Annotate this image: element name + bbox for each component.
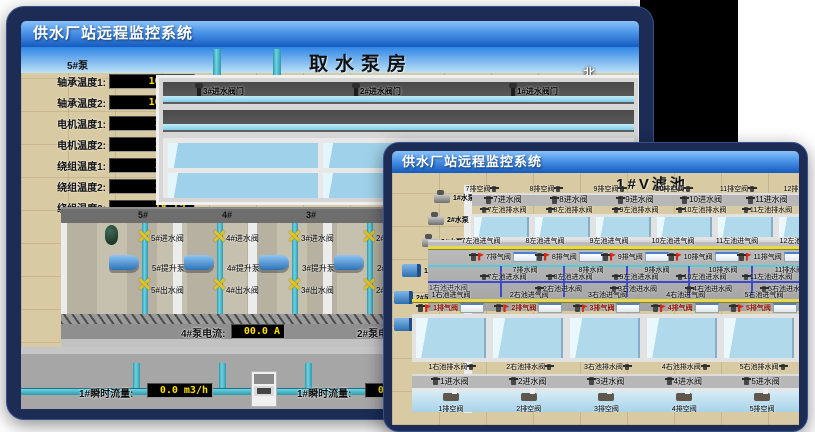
vent-pump[interactable] — [645, 392, 723, 402]
vent-valve[interactable]: 4排空阀 — [645, 404, 723, 413]
tank-icon — [579, 252, 603, 262]
valve-icon — [492, 186, 496, 192]
intake-valve[interactable]: 2#进水阀门 — [320, 84, 477, 98]
drain-header-pipe — [428, 281, 799, 283]
exhaust-valve[interactable]: 9排气阀 — [603, 250, 669, 263]
top-inlet-valve-row: 7进水阀8进水阀9进水阀10进水阀11进水阀 — [471, 194, 799, 205]
valve-label: 1进水阀 — [440, 376, 468, 387]
valve-handwheel-icon[interactable] — [362, 277, 376, 291]
inlet-valve-label: 3#进水阀 — [301, 233, 334, 244]
exhaust-valve[interactable]: 3排气阀 — [568, 302, 646, 314]
outlet-valve-label: 3#出水阀 — [301, 285, 334, 296]
air-valve[interactable]: 10左池进气阀 — [641, 236, 705, 245]
valve-label: 11排空阀 — [720, 184, 748, 194]
air-valve[interactable]: 5右池进气阀 — [725, 291, 799, 299]
valve-label: 10排空阀 — [656, 184, 685, 194]
valve-label: 8左池进气阀 — [526, 236, 565, 246]
exhaust-flag-icon — [660, 304, 666, 312]
valve-label: 2右池排水阀 — [506, 362, 545, 372]
valve-label: 10左池进气阀 — [652, 236, 695, 246]
telemetry-label: 电机温度1: — [27, 116, 109, 131]
top-vent-valve-row: 7排空阀8排空阀9排空阀10排空阀11排空阀12排空阀 — [449, 184, 799, 193]
back-window-titlebar: 供水厂站远程监控系统 — [21, 21, 639, 47]
valve-label: 1右池进气阀 — [432, 290, 471, 300]
pump-bay[interactable]: 3#进水阀 3#提升泵 3#出水阀 — [257, 223, 332, 314]
intake-valve[interactable]: 3#进水阀门 — [163, 84, 320, 98]
valve-label: 5排气阀 — [746, 303, 771, 313]
inlet-valve[interactable]: 8进水阀 — [537, 194, 603, 205]
valve-handwheel-icon[interactable] — [137, 229, 151, 243]
valve-label: 10进水阀 — [689, 194, 722, 205]
pump-bay[interactable]: 4#进水阀 4#提升泵 4#出水阀 — [182, 223, 257, 314]
valve-icon — [354, 87, 358, 96]
exhaust-flag-icon — [738, 304, 744, 312]
valve-label: 12排空阀 — [784, 184, 799, 194]
air-valve[interactable]: 2右池进气阀 — [490, 291, 568, 299]
valve-icon — [418, 304, 423, 312]
drain-valve[interactable]: 5右池排水阀 — [723, 362, 799, 371]
valve-icon — [547, 364, 551, 370]
filter-pool — [596, 217, 651, 237]
water-valve[interactable]: 10左池进水阀 — [669, 273, 735, 281]
inlet-valve[interactable]: 10进水阀 — [669, 194, 735, 205]
intake-pool-cell — [168, 173, 318, 198]
filter-pool — [779, 217, 799, 237]
inlet-valve-label: 5#进水阀 — [151, 233, 184, 244]
pump-current-display: 00.0 A — [231, 324, 285, 339]
valve-label: 3排气阀 — [590, 303, 615, 313]
drain-valve[interactable]: 11左池排水阀 — [735, 206, 799, 214]
valve-label: 2进水阀 — [518, 376, 546, 387]
lower-filter-pools — [412, 314, 799, 362]
valve-icon — [433, 377, 438, 385]
filter-pool — [657, 217, 712, 237]
tank-icon — [715, 252, 739, 262]
valve-label: 3进水阀 — [596, 376, 624, 387]
background-black-panel — [640, 0, 738, 143]
valve-icon — [703, 364, 707, 370]
water-pump-label: 2#水泵 — [447, 215, 469, 225]
valve-icon — [625, 364, 629, 370]
lift-pump-label: 3#提升泵 — [302, 263, 335, 274]
tank-icon — [538, 303, 562, 313]
inlet-valve[interactable]: 4进水阀 — [645, 375, 723, 387]
valve-icon — [197, 87, 201, 96]
inlet-valve[interactable]: 1进水阀 — [412, 375, 490, 387]
tank-icon — [513, 252, 537, 262]
flow-meter-icon[interactable] — [251, 371, 277, 407]
vent-valve[interactable]: 7排空阀 — [449, 184, 513, 193]
vent-pump[interactable] — [723, 392, 799, 402]
water-pump[interactable]: 2#水泵 — [428, 209, 475, 231]
valve-label: 11左池进水阀 — [750, 272, 792, 282]
filter-pool-scene: 1#V滤池 1#水泵 2#水泵 3#水泵 — [392, 173, 799, 425]
exhaust-flag-icon — [503, 304, 509, 312]
elbow-pump-icon — [754, 393, 770, 401]
valve-icon — [614, 207, 618, 213]
pipe-stack — [213, 49, 221, 77]
filter-pool — [570, 318, 640, 358]
valve-icon — [486, 196, 491, 204]
valve-icon — [511, 377, 516, 385]
filter-pool — [724, 318, 794, 358]
drain-valve[interactable]: 3右池排水阀 — [568, 362, 646, 371]
telemetry-label: 绕组温度2: — [27, 179, 109, 194]
valve-icon — [781, 364, 785, 370]
valve-icon — [739, 253, 744, 261]
valve-label: 12左池进气阀 — [780, 236, 799, 246]
water-valve[interactable]: 8左池进水阀 — [537, 273, 603, 281]
bay-name: 4# — [185, 208, 269, 222]
upper-water-valve-row: 7左池进水阀8左池进水阀9左池进水阀10左池进水阀11左池进水阀 — [471, 273, 799, 281]
valve-handwheel-icon[interactable] — [212, 229, 226, 243]
air-valve[interactable]: 8左池进气阀 — [513, 236, 577, 245]
drain-valve[interactable]: 7左池排水阀 — [471, 206, 537, 214]
valve-label: 9左池进水阀 — [620, 272, 659, 282]
air-valve[interactable]: 12左池进气阀 — [769, 236, 799, 245]
channel-water — [163, 124, 634, 130]
valve-label: 10排气阀 — [684, 252, 713, 262]
valve-label: 5进水阀 — [751, 376, 779, 387]
valve-label: 1右池排水阀 — [428, 362, 467, 372]
valve-icon — [614, 274, 618, 280]
elbow-pump-icon — [598, 393, 614, 401]
exhaust-valve[interactable]: 5排气阀 — [725, 302, 799, 314]
valve-icon — [511, 87, 515, 96]
vent-valve[interactable]: 12排空阀 — [769, 184, 799, 193]
water-pump-icon — [434, 194, 450, 203]
vent-valve[interactable]: 3排空阀 — [568, 404, 646, 413]
valve-label: 1排空阀 — [438, 404, 463, 414]
valve-label: 9排气阀 — [618, 252, 643, 262]
water-pump-icon — [428, 216, 444, 225]
bay-name: 3# — [269, 208, 353, 222]
scene-title: 取水泵房 — [271, 49, 451, 76]
valve-label: 8排空阀 — [530, 184, 555, 194]
bottom-vent-valve-row: 1排空阀2排空阀3排空阀4排空阀5排空阀 — [412, 404, 799, 413]
valve-icon — [678, 274, 682, 280]
valve-label: 2排气阀 — [511, 303, 536, 313]
lower-drain-valve-row: 1右池排水阀2右池排水阀3右池排水阀4右池排水阀5右池排水阀 — [412, 362, 799, 371]
valve-icon — [682, 196, 687, 204]
tank-icon — [695, 303, 719, 313]
branch-pipe — [219, 363, 226, 389]
valve-icon — [471, 253, 476, 261]
exhaust-valve[interactable]: 1排气阀 — [412, 302, 490, 314]
valve-icon — [482, 274, 486, 280]
top-drain-valve-row: 7左池排水阀8左池排水阀9左池排水阀10左池排水阀11左池排水阀 — [471, 206, 799, 214]
telemetry-label: 轴承温度1: — [27, 74, 109, 89]
inlet-valve[interactable]: 3进水阀 — [568, 375, 646, 387]
lift-pump-label: 4#提升泵 — [227, 263, 260, 274]
valve-label: 8进水阀 — [559, 194, 587, 205]
valve-label: 3右池进气阀 — [588, 290, 627, 300]
valve-icon — [667, 377, 672, 385]
lower-exhaust-valve-row: 1排气阀2排气阀3排气阀4排气阀5排气阀 — [412, 302, 799, 314]
vent-valve[interactable]: 5排空阀 — [723, 404, 799, 413]
valve-icon — [548, 274, 552, 280]
valve-label: 11左池进气阀 — [716, 236, 758, 246]
filter-pool — [416, 318, 486, 358]
valve-icon — [482, 207, 486, 213]
exhaust-flag-icon — [544, 253, 550, 261]
exhaust-flag-icon — [478, 253, 484, 261]
filter-pool — [647, 318, 717, 358]
lower-air-valve-row: 1右池进气阀2右池进气阀3右池进气阀4右池进气阀5右池进气阀 — [412, 291, 799, 299]
pump-panel-title: 5#泵 — [67, 57, 88, 72]
vent-valve[interactable]: 2排空阀 — [490, 404, 568, 413]
air-valve[interactable]: 11左池进气阀 — [705, 236, 769, 245]
valve-icon — [731, 304, 736, 312]
upper-air-valve-row: 7左池进气阀8左池进气阀9左池进气阀10左池进气阀11左池进气阀12左池进气阀 — [449, 236, 799, 245]
telemetry-label: 绕组温度1: — [27, 158, 109, 173]
vent-pump[interactable] — [568, 392, 646, 402]
pump-current-label: 4#泵电流: — [181, 325, 225, 340]
air-header-pipe — [428, 246, 799, 249]
outlet-valve-label: 5#出水阀 — [151, 285, 184, 296]
valve-icon — [620, 186, 624, 192]
valve-label: 9排空阀 — [594, 184, 619, 194]
valve-label: 3排空阀 — [594, 404, 619, 414]
exhaust-flag-icon — [582, 304, 588, 312]
exhaust-valve[interactable]: 10排气阀 — [669, 250, 739, 263]
valve-icon — [548, 207, 552, 213]
elbow-pump-icon — [676, 393, 692, 401]
valve-icon — [748, 196, 753, 204]
exhaust-flag-icon — [746, 253, 752, 261]
drain-valve[interactable]: 10左池排水阀 — [669, 206, 735, 214]
bottom-inlet-valve-row: 1进水阀2进水阀3进水阀4进水阀5进水阀 — [412, 375, 799, 387]
telemetry-label: 轴承温度2: — [27, 95, 109, 110]
inlet-valve[interactable]: 11进水阀 — [735, 194, 799, 205]
valve-icon — [618, 196, 623, 204]
blower-icon — [394, 318, 413, 331]
filter-pool — [718, 217, 773, 237]
exhaust-flag-icon — [676, 253, 682, 261]
valve-label: 9左池进气阀 — [590, 236, 629, 246]
air-valve[interactable]: 4右池进气阀 — [647, 291, 725, 299]
air-valve[interactable]: 1右池进气阀 — [412, 291, 490, 299]
front-window-titlebar: 供水厂站远程监控系统 — [392, 151, 799, 173]
lift-pump-icon[interactable] — [259, 255, 289, 270]
lift-pump-icon[interactable] — [109, 255, 139, 270]
exhaust-valve[interactable]: 8排气阀 — [537, 250, 603, 263]
valve-handwheel-icon[interactable] — [137, 277, 151, 291]
valve-label: 5右池排水阀 — [740, 362, 779, 372]
filter-pool — [493, 318, 563, 358]
inlet-valve[interactable]: 2进水阀 — [490, 375, 568, 387]
tank-icon — [773, 303, 797, 313]
drain-valve[interactable]: 4右池排水阀 — [645, 362, 723, 371]
upper-exhaust-valve-row: 7排气阀8排气阀9排气阀10排气阀11排气阀 — [471, 250, 799, 263]
valve-icon — [750, 186, 754, 192]
exhaust-valve[interactable]: 7排气阀 — [471, 250, 537, 263]
valve-icon — [469, 364, 473, 370]
valve-label: 7左池进气阀 — [462, 236, 501, 246]
valve-icon — [669, 253, 674, 261]
vent-valve[interactable]: 8排空阀 — [513, 184, 577, 193]
valve-label: 7排空阀 — [466, 184, 491, 194]
oil-tank-icon — [105, 225, 118, 245]
intake-valve-label: 2#进水阀门 — [360, 86, 401, 97]
water-valve[interactable]: 9左池进水阀 — [603, 273, 669, 281]
drain-valve[interactable]: 8左池排水阀 — [537, 206, 603, 214]
tank-icon — [784, 252, 799, 262]
drain-valve[interactable]: 2右池排水阀 — [490, 362, 568, 371]
flow-label: 1#瞬时流量: — [297, 385, 351, 400]
intake-valve[interactable]: 1#进水阀门 — [477, 84, 634, 98]
inlet-valve[interactable]: 5进水阀 — [723, 375, 799, 387]
valve-icon — [589, 377, 594, 385]
valve-icon — [678, 207, 682, 213]
valve-icon — [744, 274, 748, 280]
flow-display: 0.0 m3/h — [147, 383, 213, 398]
exhaust-flag-icon — [425, 304, 431, 312]
intake-pool-cell — [168, 143, 318, 168]
vent-valve[interactable]: 10排空阀 — [641, 184, 705, 193]
lift-pump-icon[interactable] — [334, 255, 364, 270]
inlet-valve[interactable]: 9进水阀 — [603, 194, 669, 205]
window-filter-pool: 供水厂站远程监控系统 1#V滤池 1#水泵 2#水泵 3#水泵 — [383, 142, 808, 432]
lift-pump-label: 5#提升泵 — [152, 263, 185, 274]
valve-icon — [556, 186, 560, 192]
telemetry-label: 电机温度2: — [27, 137, 109, 152]
outlet-valve-label: 4#出水阀 — [226, 285, 259, 296]
valve-label: 4排空阀 — [672, 404, 697, 414]
valve-label: 3右池排水阀 — [584, 362, 623, 372]
valve-label: 1排气阀 — [433, 303, 458, 313]
intake-valve-label: 3#进水阀门 — [203, 86, 244, 97]
drain-valve[interactable]: 1右池排水阀 — [412, 362, 490, 371]
water-valve[interactable]: 11左池进水阀 — [735, 273, 799, 281]
valve-label: 11排气阀 — [754, 252, 782, 262]
vent-valve[interactable]: 9排空阀 — [577, 184, 641, 193]
bottom-elbow-row — [412, 392, 799, 402]
tank-icon — [616, 303, 640, 313]
valve-label: 4右池进气阀 — [666, 290, 705, 300]
exhaust-flag-icon — [610, 253, 616, 261]
intake-valve-row: 3#进水阀门 2#进水阀门 1#进水阀门 — [163, 84, 634, 98]
valve-icon — [686, 186, 690, 192]
water-valve[interactable]: 7左池进水阀 — [471, 273, 537, 281]
air-valve[interactable]: 7左池进气阀 — [449, 236, 513, 245]
valve-label: 5右池进气阀 — [744, 290, 783, 300]
elbow-pump-icon — [443, 393, 459, 401]
inlet-valve[interactable]: 7进水阀 — [471, 194, 537, 205]
branch-pipe — [133, 363, 140, 389]
pump-bay[interactable]: 5#进水阀 5#提升泵 5#出水阀 — [107, 223, 182, 314]
blower-icon — [402, 264, 421, 277]
valve-icon — [653, 304, 658, 312]
vent-valve[interactable]: 1排空阀 — [412, 404, 490, 413]
valve-handwheel-icon[interactable] — [212, 277, 226, 291]
valve-icon — [552, 196, 557, 204]
bay-name: 5# — [101, 208, 185, 222]
valve-handwheel-icon[interactable] — [362, 229, 376, 243]
tank-icon — [645, 252, 669, 262]
valve-label: 9进水阀 — [625, 194, 653, 205]
exhaust-valve[interactable]: 4排气阀 — [647, 302, 725, 314]
vent-pump[interactable] — [412, 392, 490, 402]
elbow-pump-icon — [521, 393, 537, 401]
exhaust-valve[interactable]: 2排气阀 — [490, 302, 568, 314]
air-valve[interactable]: 3右池进气阀 — [568, 291, 646, 299]
valve-label: 8左池进水阀 — [554, 272, 593, 282]
valve-icon — [603, 253, 608, 261]
intake-valve-label: 1#进水阀门 — [517, 86, 558, 97]
valve-icon — [744, 377, 749, 385]
valve-label: 11进水阀 — [755, 194, 787, 205]
valve-icon — [496, 304, 501, 312]
filter-pool — [474, 217, 529, 237]
valve-label: 2排空阀 — [516, 404, 541, 414]
valve-label: 10左池进水阀 — [684, 272, 727, 282]
drain-valve[interactable]: 9左池排水阀 — [603, 206, 669, 214]
valve-icon — [575, 304, 580, 312]
inlet-valve-label: 4#进水阀 — [226, 233, 259, 244]
air-valve[interactable]: 9左池进气阀 — [577, 236, 641, 245]
intake-channel — [163, 110, 634, 132]
lift-pump-icon[interactable] — [184, 255, 214, 270]
valve-icon — [744, 207, 748, 213]
exhaust-valve[interactable]: 11排气阀 — [739, 250, 799, 263]
blower-icon — [394, 291, 413, 304]
valve-icon — [537, 253, 542, 261]
valve-label: 4右池排水阀 — [662, 362, 701, 372]
valve-label: 4排气阀 — [668, 303, 693, 313]
tank-icon — [460, 303, 484, 313]
flow-label: 1#瞬时流量: — [79, 385, 133, 400]
vent-pump[interactable] — [490, 392, 568, 402]
valve-label: 7左池进水阀 — [488, 272, 527, 282]
valve-label: 8排气阀 — [552, 252, 577, 262]
valve-handwheel-icon[interactable] — [287, 277, 301, 291]
valve-label: 7排气阀 — [486, 252, 511, 262]
filter-pool — [535, 217, 590, 237]
vent-valve[interactable]: 11排空阀 — [705, 184, 769, 193]
valve-handwheel-icon[interactable] — [287, 229, 301, 243]
valve-label: 5排空阀 — [750, 404, 775, 414]
valve-label: 2右池进气阀 — [510, 290, 549, 300]
valve-label: 7进水阀 — [493, 194, 521, 205]
valve-label: 4进水阀 — [674, 376, 702, 387]
